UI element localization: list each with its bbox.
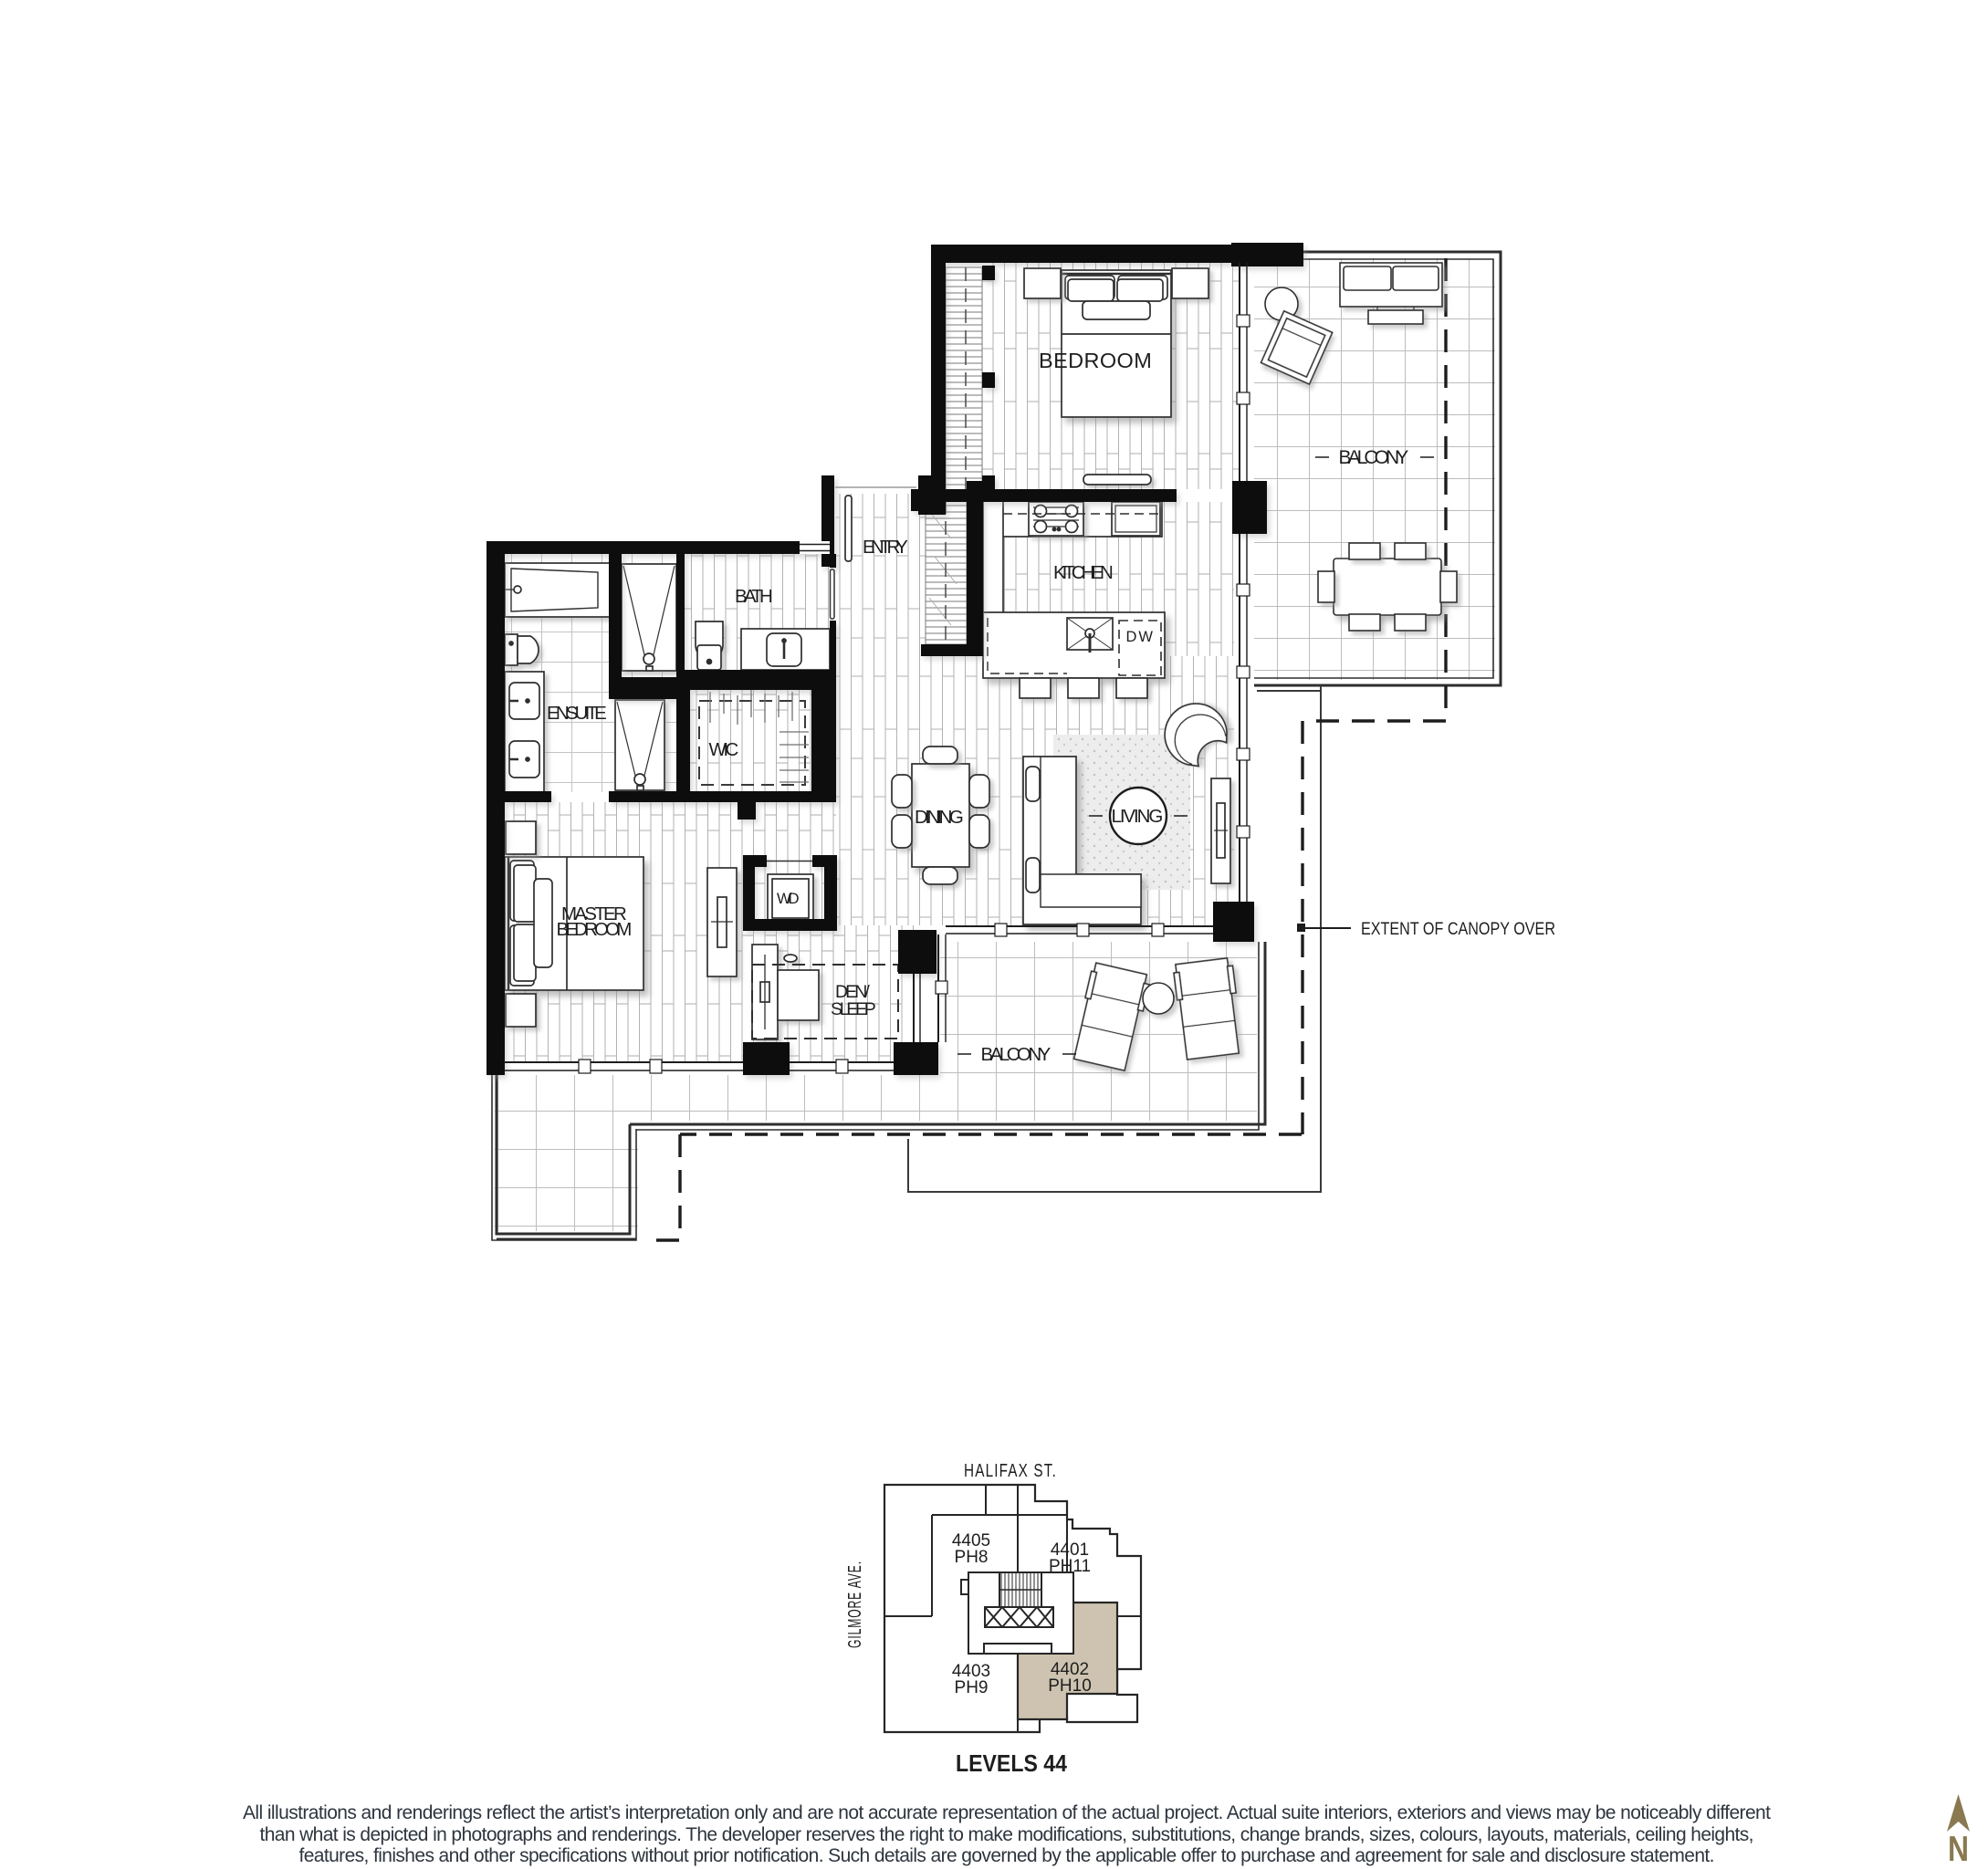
svg-text:BEDROOM: BEDROOM xyxy=(1039,349,1154,372)
svg-text:KITCHEN: KITCHEN xyxy=(1053,562,1115,583)
svg-text:All illustrations and renderin: All illustrations and renderings reflect… xyxy=(243,1802,1771,1823)
svg-text:GILMORE AVE.: GILMORE AVE. xyxy=(845,1561,865,1648)
svg-text:BEDROOM: BEDROOM xyxy=(557,919,634,940)
svg-text:W/D: W/D xyxy=(777,891,800,907)
svg-text:EXTENT OF CANOPY OVER: EXTENT OF CANOPY OVER xyxy=(1361,919,1555,939)
svg-text:ENTRY: ENTRY xyxy=(863,537,910,558)
svg-text:SLEEP: SLEEP xyxy=(831,999,878,1019)
svg-text:ENSUITE: ENSUITE xyxy=(547,703,609,724)
svg-text:than what is depicted in photo: than what is depicted in photographs and… xyxy=(259,1824,1753,1845)
svg-text:PH8: PH8 xyxy=(955,1548,989,1567)
svg-text:WIC: WIC xyxy=(709,739,741,760)
svg-text:PH10: PH10 xyxy=(1048,1676,1092,1696)
svg-text:features, finishes and other s: features, finishes and other specificati… xyxy=(299,1845,1715,1866)
svg-text:LEVELS 44: LEVELS 44 xyxy=(956,1749,1067,1777)
svg-text:BATH: BATH xyxy=(735,586,775,607)
svg-text:DW: DW xyxy=(1126,629,1155,645)
svg-text:HALIFAX ST.: HALIFAX ST. xyxy=(964,1461,1057,1481)
svg-text:DINING: DINING xyxy=(915,807,966,828)
svg-text:BALCONY: BALCONY xyxy=(981,1044,1053,1065)
svg-text:N: N xyxy=(1948,1830,1969,1869)
svg-text:PH11: PH11 xyxy=(1049,1557,1091,1576)
svg-text:BALCONY: BALCONY xyxy=(1339,447,1411,468)
svg-text:PH9: PH9 xyxy=(955,1678,989,1697)
svg-text:LIVING: LIVING xyxy=(1112,806,1166,827)
